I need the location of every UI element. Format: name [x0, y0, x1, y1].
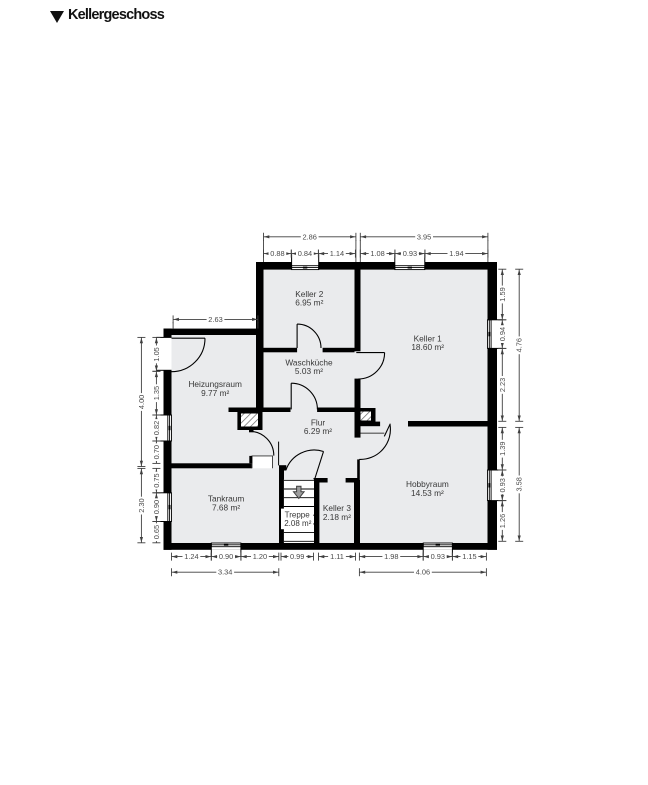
- svg-text:0.65: 0.65: [152, 525, 161, 539]
- svg-text:4.06: 4.06: [416, 568, 430, 577]
- svg-text:3.58: 3.58: [515, 477, 524, 491]
- svg-text:1.24: 1.24: [184, 552, 198, 561]
- svg-text:0.93: 0.93: [498, 478, 507, 492]
- svg-text:1.94: 1.94: [449, 249, 463, 258]
- svg-text:2.08 m²: 2.08 m²: [284, 519, 311, 528]
- svg-text:2.63: 2.63: [208, 315, 222, 324]
- svg-text:1.11: 1.11: [330, 552, 344, 561]
- svg-text:2.23: 2.23: [498, 378, 507, 392]
- svg-text:1.20: 1.20: [253, 552, 267, 561]
- svg-text:0.93: 0.93: [431, 552, 445, 561]
- svg-text:3.95: 3.95: [417, 232, 431, 241]
- svg-text:1.98: 1.98: [384, 552, 398, 561]
- svg-text:4.76: 4.76: [515, 338, 524, 352]
- svg-text:14.53 m²: 14.53 m²: [411, 488, 444, 498]
- svg-text:0.99: 0.99: [290, 552, 304, 561]
- svg-text:0.84: 0.84: [298, 249, 312, 258]
- svg-text:18.60 m²: 18.60 m²: [411, 342, 444, 352]
- svg-text:2.30: 2.30: [137, 498, 146, 512]
- svg-text:0.75: 0.75: [152, 473, 161, 487]
- svg-text:2.18 m²: 2.18 m²: [323, 512, 351, 522]
- svg-text:4.00: 4.00: [137, 395, 146, 409]
- svg-text:1.08: 1.08: [370, 249, 384, 258]
- svg-text:6.95 m²: 6.95 m²: [295, 298, 323, 308]
- svg-text:1.59: 1.59: [498, 287, 507, 301]
- svg-text:5.03 m²: 5.03 m²: [295, 366, 323, 376]
- svg-text:0.70: 0.70: [152, 445, 161, 459]
- svg-text:1.35: 1.35: [152, 386, 161, 400]
- svg-text:6.29 m²: 6.29 m²: [304, 426, 332, 436]
- svg-text:0.88: 0.88: [270, 249, 284, 258]
- svg-text:1.39: 1.39: [498, 442, 507, 456]
- svg-text:2.86: 2.86: [303, 232, 317, 241]
- svg-text:1.14: 1.14: [330, 249, 344, 258]
- svg-text:0.90: 0.90: [152, 500, 161, 514]
- svg-text:1.15: 1.15: [462, 552, 476, 561]
- svg-text:9.77 m²: 9.77 m²: [201, 388, 229, 398]
- svg-text:0.94: 0.94: [498, 327, 507, 341]
- svg-text:0.90: 0.90: [219, 552, 233, 561]
- svg-text:1.26: 1.26: [498, 514, 507, 528]
- svg-text:0.93: 0.93: [403, 249, 417, 258]
- svg-text:7.68 m²: 7.68 m²: [212, 502, 240, 512]
- svg-text:3.34: 3.34: [218, 568, 232, 577]
- svg-text:0.82: 0.82: [152, 421, 161, 435]
- svg-text:1.05: 1.05: [152, 347, 161, 361]
